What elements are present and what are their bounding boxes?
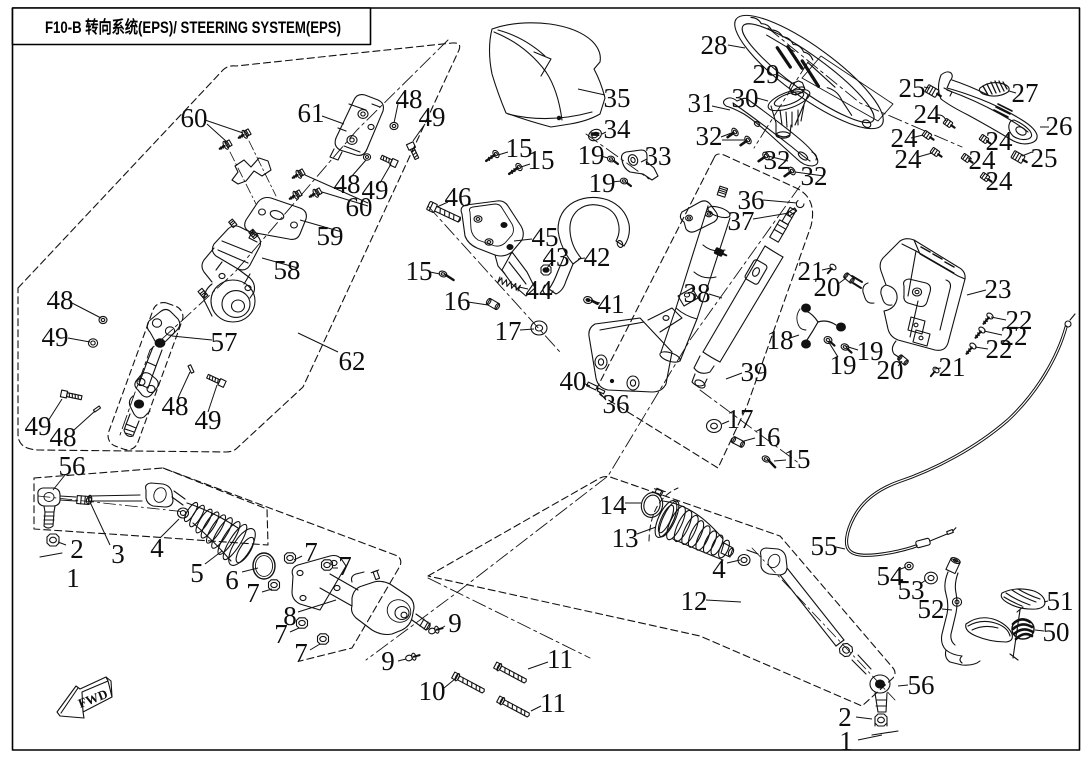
- svg-text:19: 19: [589, 168, 616, 198]
- svg-text:49: 49: [42, 322, 69, 352]
- svg-text:27: 27: [1012, 78, 1039, 108]
- svg-text:42: 42: [584, 242, 611, 272]
- svg-text:34: 34: [604, 114, 632, 144]
- svg-text:56: 56: [59, 451, 86, 481]
- svg-text:16: 16: [444, 286, 471, 316]
- svg-text:25: 25: [1031, 143, 1058, 173]
- svg-text:10: 10: [419, 676, 446, 706]
- svg-text:61: 61: [298, 98, 325, 128]
- svg-text:5: 5: [190, 558, 204, 588]
- svg-text:14: 14: [600, 490, 628, 520]
- svg-text:1: 1: [839, 726, 853, 756]
- svg-text:52: 52: [918, 594, 945, 624]
- svg-text:17: 17: [727, 404, 754, 434]
- svg-text:7: 7: [304, 537, 318, 567]
- svg-text:59: 59: [317, 221, 344, 251]
- svg-text:20: 20: [877, 355, 904, 385]
- svg-text:7: 7: [294, 638, 308, 668]
- svg-text:18: 18: [767, 325, 794, 355]
- svg-text:22: 22: [986, 334, 1013, 364]
- svg-text:21: 21: [939, 352, 966, 382]
- svg-text:26: 26: [1046, 111, 1073, 141]
- svg-text:57: 57: [211, 327, 238, 357]
- svg-text:12: 12: [681, 586, 708, 616]
- svg-text:24: 24: [914, 99, 942, 129]
- svg-text:39: 39: [741, 357, 768, 387]
- svg-text:7: 7: [338, 551, 352, 581]
- svg-text:6: 6: [225, 565, 239, 595]
- svg-text:32: 32: [801, 161, 828, 191]
- svg-text:9: 9: [381, 646, 395, 676]
- svg-text:4: 4: [150, 533, 164, 563]
- svg-text:11: 11: [540, 688, 566, 718]
- svg-text:55: 55: [811, 531, 838, 561]
- svg-text:43: 43: [543, 242, 570, 272]
- svg-text:19: 19: [578, 140, 605, 170]
- svg-text:11: 11: [547, 644, 573, 674]
- svg-text:48: 48: [50, 422, 77, 452]
- svg-text:31: 31: [688, 88, 715, 118]
- svg-text:40: 40: [560, 366, 587, 396]
- svg-text:48: 48: [162, 391, 189, 421]
- svg-text:24: 24: [986, 166, 1014, 196]
- svg-text:44: 44: [526, 275, 554, 305]
- svg-text:17: 17: [495, 316, 522, 346]
- svg-text:20: 20: [814, 272, 841, 302]
- svg-text:37: 37: [728, 206, 755, 236]
- svg-text:36: 36: [603, 389, 630, 419]
- svg-text:16: 16: [754, 422, 781, 452]
- svg-text:15: 15: [528, 145, 555, 175]
- svg-text:41: 41: [598, 289, 625, 319]
- svg-text:28: 28: [701, 30, 728, 60]
- svg-text:38: 38: [684, 278, 711, 308]
- svg-text:46: 46: [445, 182, 472, 212]
- svg-text:58: 58: [274, 255, 301, 285]
- svg-text:50: 50: [1043, 617, 1070, 647]
- svg-text:56: 56: [908, 670, 935, 700]
- svg-text:49: 49: [195, 405, 222, 435]
- svg-text:19: 19: [830, 350, 857, 380]
- svg-text:F10-B 转向系统(EPS)/ STEERING SYST: F10-B 转向系统(EPS)/ STEERING SYSTEM(EPS): [45, 17, 341, 37]
- svg-text:1: 1: [66, 563, 80, 593]
- svg-text:33: 33: [645, 141, 672, 171]
- svg-text:60: 60: [181, 103, 208, 133]
- svg-text:35: 35: [604, 83, 631, 113]
- svg-text:23: 23: [985, 274, 1012, 304]
- svg-text:9: 9: [448, 608, 462, 638]
- svg-text:32: 32: [764, 145, 791, 175]
- svg-text:49: 49: [419, 102, 446, 132]
- svg-text:3: 3: [111, 539, 125, 569]
- svg-text:7: 7: [246, 578, 260, 608]
- svg-text:30: 30: [732, 83, 759, 113]
- svg-text:48: 48: [47, 285, 74, 315]
- svg-text:51: 51: [1047, 586, 1074, 616]
- svg-text:49: 49: [25, 411, 52, 441]
- svg-text:60: 60: [346, 192, 373, 222]
- svg-text:4: 4: [712, 554, 726, 584]
- svg-text:2: 2: [70, 534, 84, 564]
- svg-text:15: 15: [784, 444, 811, 474]
- svg-text:24: 24: [895, 144, 923, 174]
- svg-text:8: 8: [283, 601, 297, 631]
- svg-text:62: 62: [339, 346, 366, 376]
- svg-text:13: 13: [612, 523, 639, 553]
- svg-text:15: 15: [406, 256, 433, 286]
- svg-text:32: 32: [696, 121, 723, 151]
